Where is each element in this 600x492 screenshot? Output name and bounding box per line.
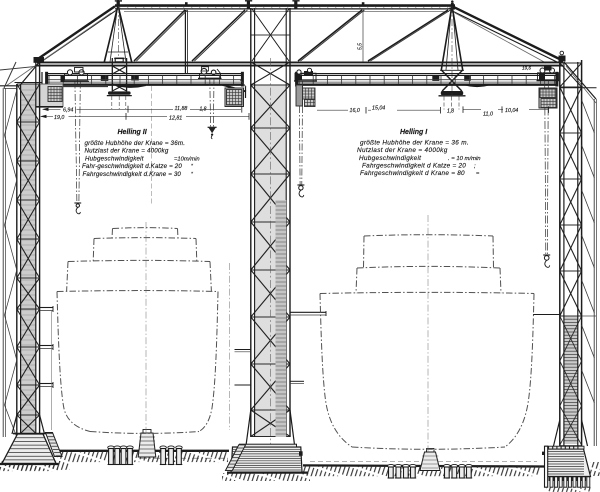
svg-text:12,81: 12,81 [169,116,182,122]
svg-text:Helling I: Helling I [400,129,428,136]
svg-text:Nutzlast der Krane = 4000kg: Nutzlast der Krane = 4000kg [85,148,169,155]
svg-text:5,5: 5,5 [358,43,364,50]
svg-text:größte Hubhöhe der Krane = 36: größte Hubhöhe der Krane = 36 m. [360,140,469,147]
svg-text:. = 10 m/min: . = 10 m/min [448,156,481,162]
svg-text:Hubgeschwindigkeit: Hubgeschwindigkeit [359,155,421,162]
svg-text:11,0: 11,0 [483,111,493,117]
svg-text:größte Hubhöhe der Krane = 36m: größte Hubhöhe der Krane = 36m. [85,140,186,147]
svg-text:=10m/min: =10m/min [174,157,200,163]
svg-text:1,8: 1,8 [447,108,454,114]
svg-text:Hubgeschwindigkeit: Hubgeschwindigkeit [85,156,144,163]
svg-text:Helling II: Helling II [118,129,148,136]
svg-text:16,0: 16,0 [350,108,360,114]
svg-text:19,6: 19,6 [522,66,531,71]
svg-text:11,88: 11,88 [175,106,188,112]
svg-text:1,8: 1,8 [200,107,207,113]
svg-text:Fahr-geschwindigkeit d.Katze =: Fahr-geschwindigkeit d.Katze = 20 [82,163,182,170]
svg-text:15,04: 15,04 [372,106,385,112]
svg-text:10,04: 10,04 [505,108,518,114]
svg-text:Fahrgeschwindigkeit d.Krane =: Fahrgeschwindigkeit d.Krane = 30 [83,171,182,178]
svg-text:Fahrgeschwindigkeit d Katze =: Fahrgeschwindigkeit d Katze = 20 [362,163,466,170]
svg-text:Fahrgeschwindigkeit d Krane =: Fahrgeschwindigkeit d Krane = 80 [360,170,465,177]
svg-text:6,94: 6,94 [63,108,73,114]
svg-text:Nutzlast der Krane = 4000kg: Nutzlast der Krane = 4000kg [357,147,448,154]
svg-text:19,0: 19,0 [54,115,64,121]
